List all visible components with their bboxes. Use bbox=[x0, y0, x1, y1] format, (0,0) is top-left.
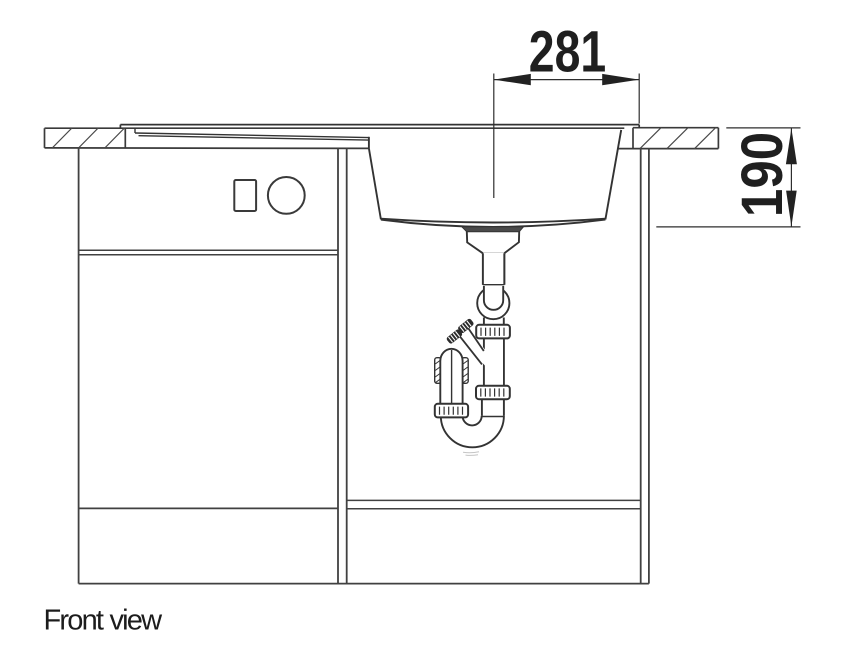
svg-text:Front view: Front view bbox=[44, 604, 164, 636]
svg-text:190: 190 bbox=[730, 132, 795, 217]
svg-text:281: 281 bbox=[529, 19, 606, 84]
